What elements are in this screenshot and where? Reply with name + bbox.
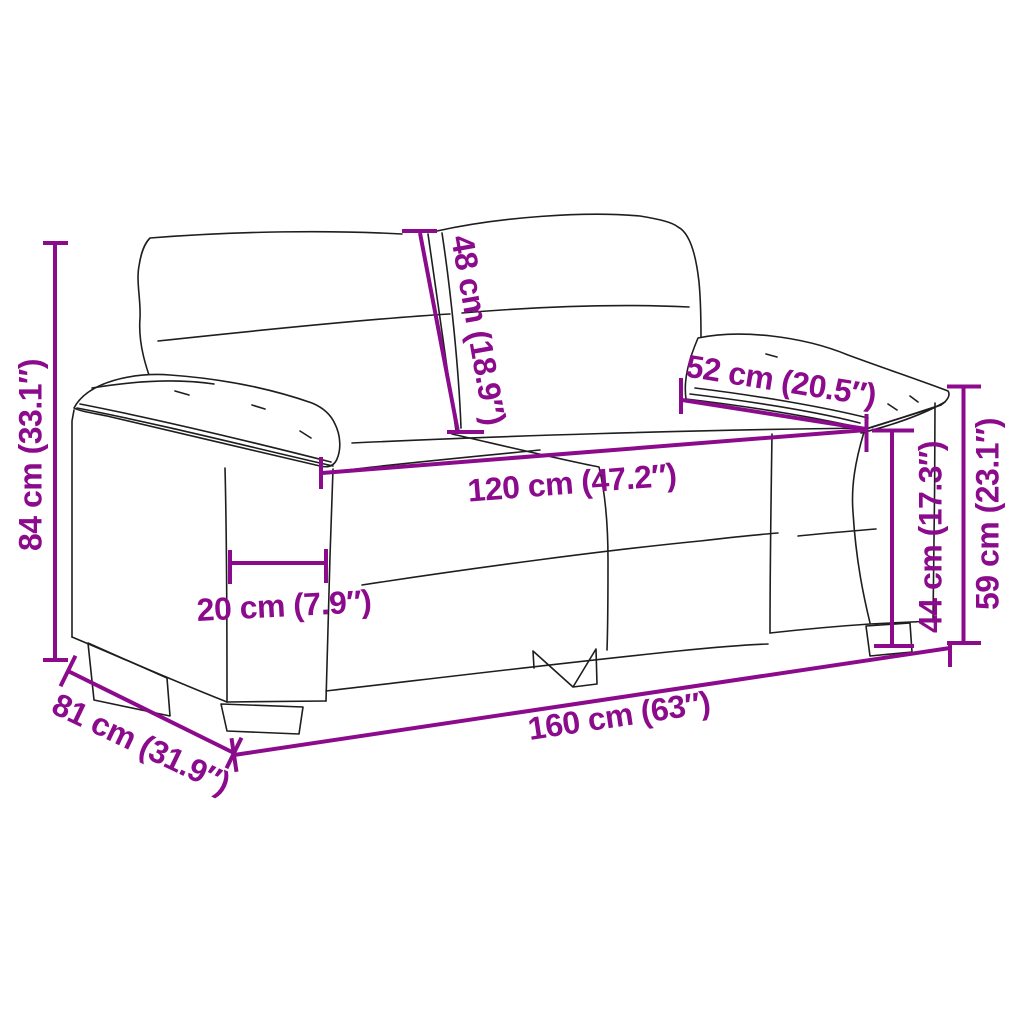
- center-legs: [533, 649, 597, 687]
- backrest-seam: [158, 306, 689, 341]
- right-leg: [866, 623, 912, 656]
- sofa-dimension-diagram: 84 cm (33.1″) 48 cm (18.9″) 52 cm (20.5″…: [0, 0, 1024, 1024]
- right-arm-front-curve: [852, 432, 870, 623]
- dim-line-seat-back-height: [872, 431, 914, 647]
- dim-label-overall-height: 84 cm (33.1″): [13, 359, 50, 551]
- left-arm-side-edge: [72, 410, 74, 637]
- dim-label-seat-back-height: 44 cm (17.3″): [913, 441, 950, 633]
- dim-line-armrest-width: [230, 549, 326, 584]
- left-arm-corner-seam: [225, 468, 227, 702]
- seat-front-seam: [362, 533, 778, 585]
- diagram-canvas: [0, 0, 1024, 1024]
- dim-label-armrest-height: 59 cm (23.1″): [970, 418, 1007, 610]
- left-armrest-pillow: [74, 374, 340, 466]
- right-arm-face-seam: [798, 529, 876, 536]
- left-arm-front-bottom: [227, 701, 326, 702]
- left-front-leg: [221, 704, 303, 734]
